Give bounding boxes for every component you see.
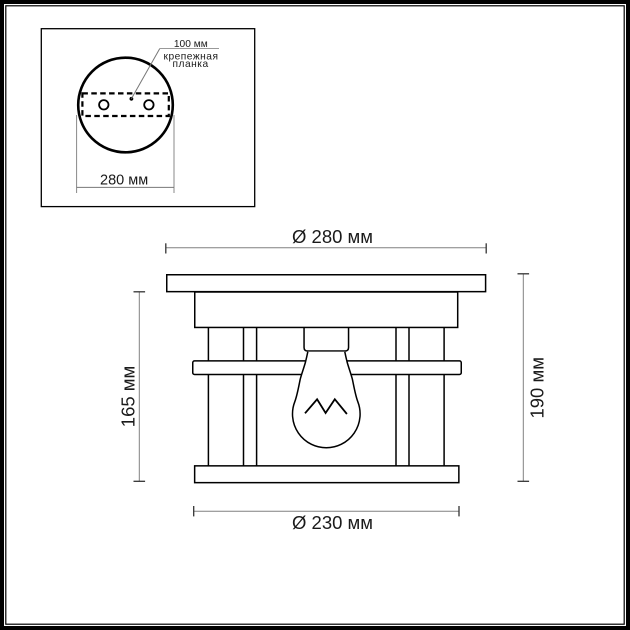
svg-text:190 мм: 190 мм [527,357,548,418]
svg-text:Ø 230 мм: Ø 230 мм [292,512,373,533]
svg-text:планка: планка [173,59,209,70]
svg-text:165 мм: 165 мм [118,366,139,427]
svg-text:100 мм: 100 мм [174,39,208,50]
svg-text:Ø 280 мм: Ø 280 мм [292,226,373,247]
svg-text:280 мм: 280 мм [100,173,148,189]
